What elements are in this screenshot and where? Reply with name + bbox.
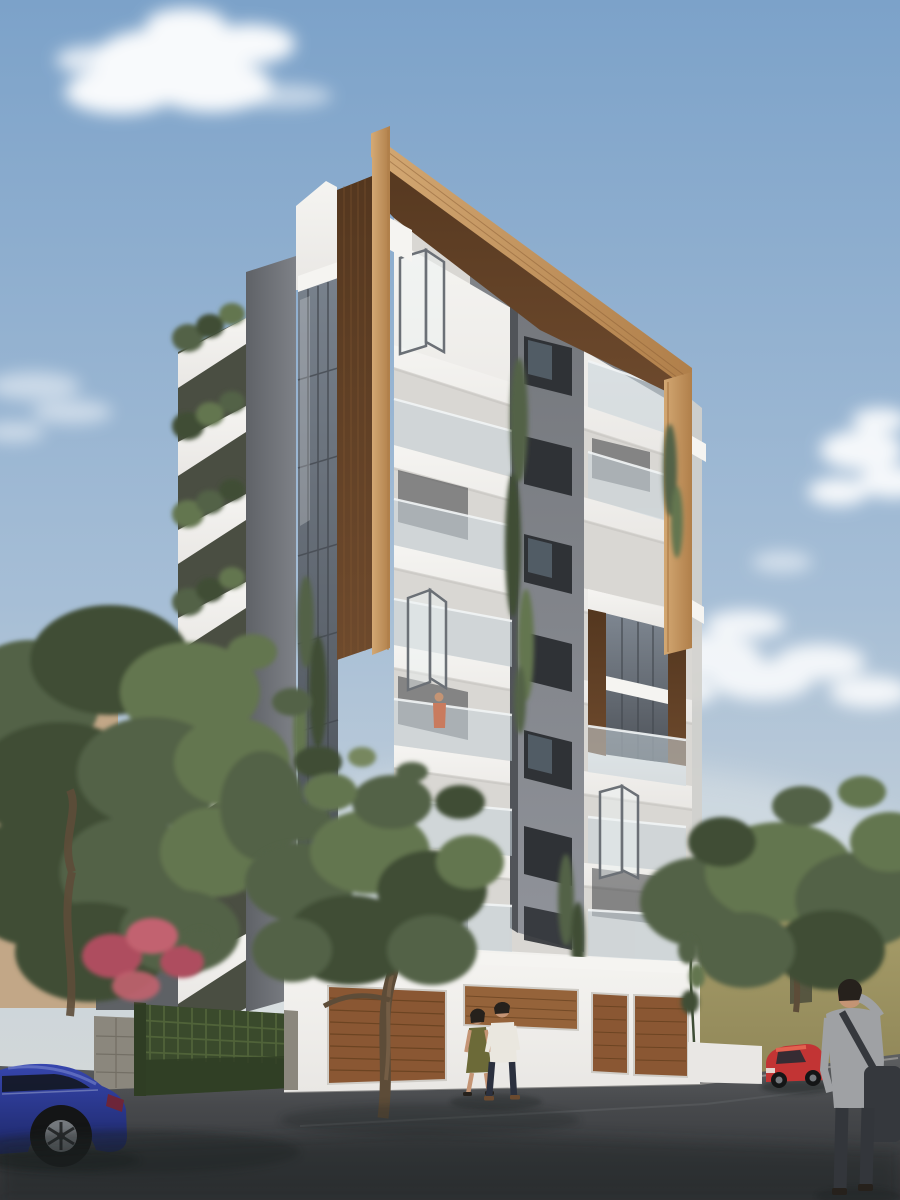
- garage-door-right-1: [592, 993, 628, 1074]
- garage-door-right-2: [634, 995, 688, 1077]
- garage-door-center-panel: [464, 985, 578, 1030]
- license-plate: [766, 1068, 775, 1073]
- render-canvas: [0, 0, 900, 1200]
- green-gate: [134, 1002, 298, 1096]
- stone-wall: [94, 1016, 140, 1090]
- stone-pillar: [284, 1010, 298, 1090]
- glass-reflection: [300, 296, 310, 526]
- architectural-render: [0, 0, 900, 1200]
- corner-wood-cladding: [337, 176, 372, 660]
- boundary-wall-white: [688, 1042, 762, 1084]
- gate-post: [134, 1002, 146, 1096]
